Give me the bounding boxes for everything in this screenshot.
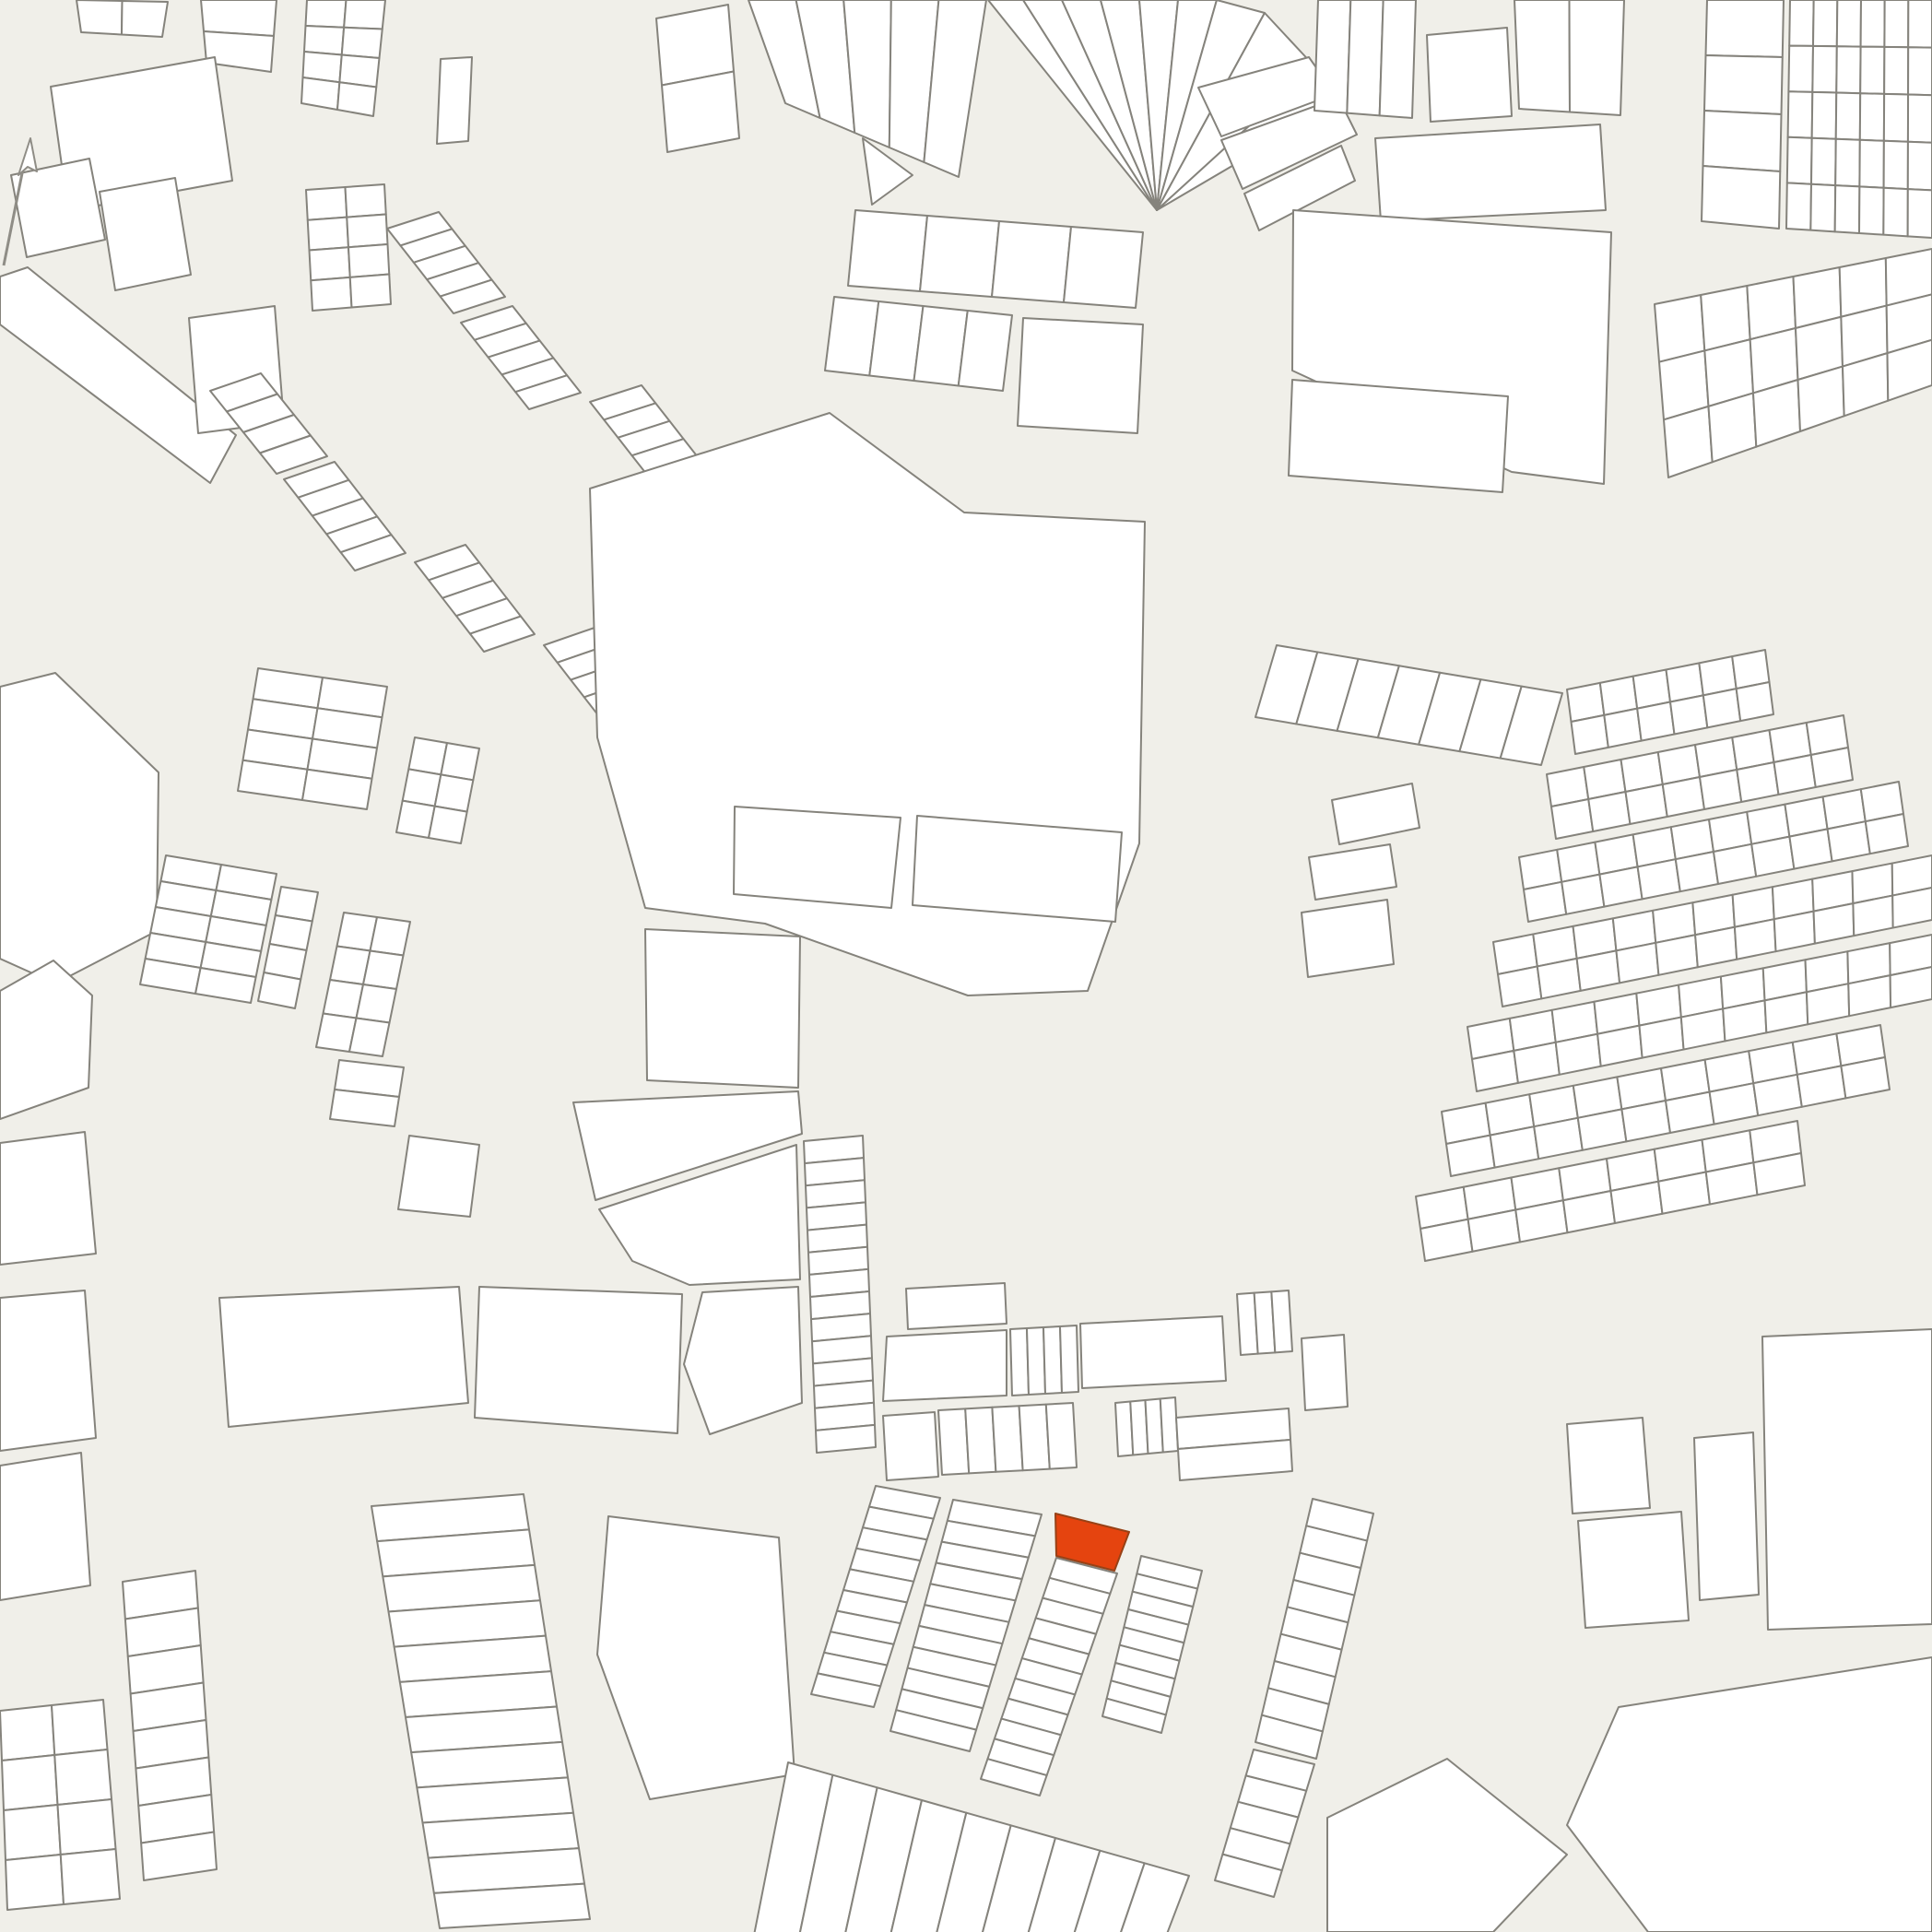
parcel-lot xyxy=(304,26,344,55)
parcel-lot xyxy=(1774,755,1816,795)
parcel-lot xyxy=(1837,0,1861,47)
parcel-lot xyxy=(1866,814,1908,854)
parcel-lot xyxy=(349,1019,390,1057)
parcel xyxy=(100,178,191,290)
parcel-lot xyxy=(1814,903,1855,944)
parcel-lot xyxy=(1835,185,1860,233)
parcel-lot xyxy=(308,218,348,251)
parcel-lot xyxy=(301,77,339,110)
parcel-lot xyxy=(1835,139,1860,187)
parcel-lot xyxy=(77,0,123,35)
parcel-lot xyxy=(1884,141,1908,189)
parcel xyxy=(1018,318,1143,433)
parcel-lot xyxy=(1060,1325,1078,1393)
parcel xyxy=(1289,380,1508,492)
parcel-lot xyxy=(54,1749,112,1805)
parcel-lot xyxy=(1498,966,1541,1007)
parcel-lot xyxy=(371,917,411,956)
parcel-lot xyxy=(992,1406,1022,1472)
parcel-lot xyxy=(2,1755,58,1810)
parcel xyxy=(1762,1329,1932,1630)
parcel-lot xyxy=(1908,189,1932,238)
parcel-lot xyxy=(429,807,467,843)
parcel-lot xyxy=(1599,866,1642,906)
parcel-lot xyxy=(1861,0,1885,47)
parcel-lot xyxy=(1472,1051,1518,1091)
parcel xyxy=(913,816,1122,922)
parcel xyxy=(883,1330,1007,1401)
parcel xyxy=(1080,1316,1226,1388)
parcel xyxy=(0,1453,90,1600)
parcel xyxy=(645,929,800,1088)
parcel-lot xyxy=(1811,138,1836,185)
parcel-lot xyxy=(122,1,168,37)
parcel-lot xyxy=(1556,1034,1601,1075)
parcel-lot xyxy=(1892,888,1932,928)
parcel xyxy=(0,1290,96,1451)
parcel-lot xyxy=(959,311,1012,391)
parcel-lot xyxy=(1551,799,1593,839)
parcel-lot xyxy=(1561,875,1604,914)
parcel-lot xyxy=(330,1090,399,1126)
parcel-lot xyxy=(1626,784,1667,824)
parcel-lot xyxy=(58,1799,116,1855)
parcel-lot xyxy=(1706,0,1785,57)
parcel-lot xyxy=(1597,1026,1643,1066)
parcel xyxy=(906,1283,1007,1329)
parcel-lot xyxy=(1812,92,1837,139)
parcel-lot xyxy=(1787,137,1812,184)
parcel-lot xyxy=(1271,1290,1292,1352)
parcel-lot xyxy=(1751,837,1794,877)
parcel-lot xyxy=(965,1408,995,1474)
parcel-lot xyxy=(1604,709,1641,748)
parcel xyxy=(1302,1335,1348,1410)
parcel-lot xyxy=(1812,46,1836,93)
parcel-lot xyxy=(1860,47,1884,94)
parcel-lot xyxy=(258,972,300,1008)
parcel-lot xyxy=(1703,111,1782,171)
parcel-lot xyxy=(1789,829,1832,868)
parcel xyxy=(734,807,901,908)
parcel-lot xyxy=(1380,0,1416,118)
parcel-lot xyxy=(342,28,383,58)
parcel xyxy=(883,1412,938,1480)
parcel-lot xyxy=(920,216,999,297)
parcel-lot xyxy=(1702,166,1780,229)
parcel-lot xyxy=(6,1855,64,1910)
parcel-lot xyxy=(662,72,739,153)
parcel-lot xyxy=(1853,896,1892,937)
parcel-lot xyxy=(848,210,927,291)
parcel-lot xyxy=(52,1700,108,1755)
parcel-lot xyxy=(1860,93,1884,141)
parcel-lot xyxy=(1908,47,1932,95)
parcel-lot xyxy=(1737,682,1773,721)
parcel xyxy=(437,57,472,144)
parcel-lot xyxy=(1676,852,1718,891)
parcel xyxy=(398,1136,479,1217)
parcel-lot xyxy=(1788,91,1813,138)
parcel-lot xyxy=(1027,1327,1045,1395)
parcel-lot xyxy=(992,221,1071,302)
parcel-lot xyxy=(816,1425,876,1453)
parcel-lot xyxy=(1695,927,1737,968)
parcel-lot xyxy=(1859,140,1883,188)
parcel xyxy=(11,159,105,257)
parcel-lot xyxy=(1836,93,1860,140)
parcel-lot xyxy=(1774,912,1815,952)
parcel-lot xyxy=(1884,0,1908,47)
parcel-lot xyxy=(311,277,351,311)
parcel-lot xyxy=(310,247,350,280)
parcel-lot xyxy=(1735,919,1776,960)
parcel xyxy=(475,1287,682,1433)
parcel-lot xyxy=(1828,821,1870,861)
parcel-lot xyxy=(1160,1397,1178,1453)
parcel-lot xyxy=(1908,0,1932,48)
parcel-lot xyxy=(1703,689,1740,727)
parcel-lot xyxy=(1572,715,1608,754)
parcel-lot xyxy=(363,951,404,990)
map-canvas xyxy=(0,0,1932,1932)
parcel-lot xyxy=(1884,94,1908,142)
parcel-lot xyxy=(1537,959,1581,999)
parcel-lot xyxy=(347,215,387,248)
parcel-lot xyxy=(1570,0,1625,115)
parcel-lot xyxy=(1786,183,1811,230)
parcel-map xyxy=(0,0,1932,1932)
parcel xyxy=(0,1132,96,1265)
parcel-lot xyxy=(1043,1326,1062,1394)
parcel-lot xyxy=(1788,46,1813,92)
parcel-lot xyxy=(1859,186,1884,234)
parcel-lot xyxy=(306,0,347,28)
parcel-lot xyxy=(306,187,347,220)
parcel-lot xyxy=(1737,762,1778,802)
parcel-lot xyxy=(1700,770,1741,809)
parcel-lot xyxy=(346,184,386,218)
parcel-lot xyxy=(1314,0,1350,113)
parcel-lot xyxy=(0,1705,54,1761)
parcel-lot xyxy=(357,984,397,1023)
parcel-lot xyxy=(1884,47,1908,95)
parcel-lot xyxy=(1064,227,1143,308)
parcel-lot xyxy=(201,0,277,36)
parcel-lot xyxy=(1811,748,1853,787)
parcel-lot xyxy=(1616,943,1658,984)
parcel-lot xyxy=(1638,859,1680,899)
parcel xyxy=(1375,124,1606,221)
parcel-lot xyxy=(1046,1403,1077,1469)
parcel xyxy=(1302,900,1394,977)
parcel xyxy=(219,1287,468,1427)
parcel-lot xyxy=(1577,950,1620,991)
parcel-lot xyxy=(1704,55,1783,114)
parcel-lot xyxy=(344,0,385,29)
parcel-lot xyxy=(1637,702,1674,741)
parcel-lot xyxy=(1714,844,1756,884)
parcel-lot xyxy=(350,275,391,308)
parcel-lot xyxy=(1588,792,1630,831)
parcel-lot xyxy=(1514,1043,1559,1083)
parcel-lot xyxy=(1347,0,1383,115)
parcel xyxy=(1578,1512,1689,1628)
parcel-lot xyxy=(1655,935,1698,975)
parcel-lot xyxy=(1836,46,1860,93)
parcel-lot xyxy=(1813,0,1837,46)
parcel-lot xyxy=(1883,188,1907,237)
parcel-lot xyxy=(1514,0,1570,112)
parcel-lot xyxy=(441,743,479,780)
parcel-lot xyxy=(1908,95,1932,143)
parcel-lot xyxy=(1663,777,1704,817)
parcel-lot xyxy=(61,1849,120,1904)
parcel-lot xyxy=(1670,695,1707,734)
parcel-lot xyxy=(938,1408,969,1475)
parcel-lot xyxy=(1010,1328,1029,1396)
parcel-lot xyxy=(1810,184,1835,232)
parcel-lot xyxy=(1019,1405,1050,1471)
parcel-lot xyxy=(1789,0,1813,46)
parcel-lot xyxy=(348,244,389,277)
parcel xyxy=(1427,28,1512,122)
parcel-lot xyxy=(1908,142,1932,191)
parcel xyxy=(1567,1418,1650,1514)
parcel-lot xyxy=(337,82,376,116)
parcel xyxy=(1694,1432,1759,1600)
parcel-lot xyxy=(4,1805,61,1860)
parcel-lot xyxy=(1524,882,1566,922)
parcel-lot xyxy=(435,774,474,811)
